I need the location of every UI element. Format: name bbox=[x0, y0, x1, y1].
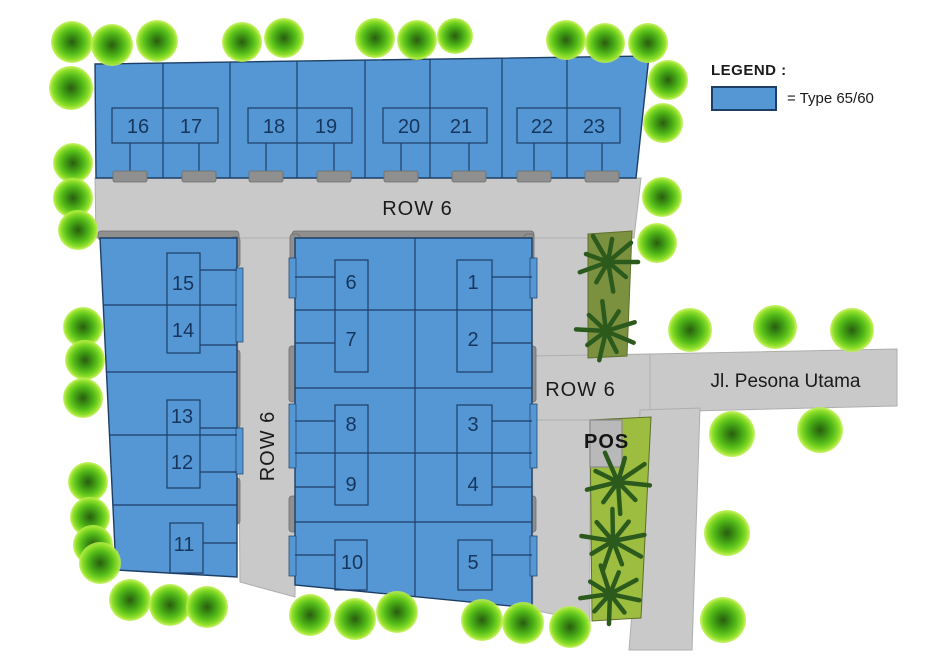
tree bbox=[668, 308, 712, 352]
driveway-apron bbox=[113, 171, 147, 182]
driveway-stub bbox=[289, 258, 296, 298]
tree bbox=[136, 20, 178, 62]
driveway-stub bbox=[289, 404, 296, 468]
legend: LEGEND : = Type 65/60 bbox=[711, 62, 926, 111]
tree bbox=[186, 586, 228, 628]
lot-number-14: 14 bbox=[161, 318, 205, 344]
tree bbox=[700, 597, 746, 643]
row6-top-road-label: ROW 6 bbox=[375, 198, 460, 220]
tree bbox=[51, 21, 93, 63]
lot-number-11: 11 bbox=[162, 532, 206, 558]
tree bbox=[334, 598, 376, 640]
tree bbox=[109, 579, 151, 621]
tree bbox=[355, 18, 395, 58]
lot-number-10: 10 bbox=[330, 550, 374, 576]
site-plan: ROW 6 ROW 6 ROW 6 Jl. Pesona Utama POS L… bbox=[0, 0, 943, 666]
tree bbox=[753, 305, 797, 349]
lot-number-7: 7 bbox=[329, 327, 373, 353]
tree bbox=[79, 542, 121, 584]
tree bbox=[222, 22, 262, 62]
lot-number-20: 20 bbox=[387, 114, 431, 140]
driveway-apron bbox=[317, 171, 351, 182]
tree bbox=[53, 143, 93, 183]
tree bbox=[68, 462, 108, 502]
lot-number-5: 5 bbox=[451, 550, 495, 576]
driveway-apron bbox=[517, 171, 551, 182]
road-row6-top bbox=[95, 178, 641, 238]
road-row6-right bbox=[532, 238, 590, 622]
driveway-apron bbox=[452, 171, 486, 182]
lot-number-3: 3 bbox=[451, 412, 495, 438]
tree bbox=[704, 510, 750, 556]
lot-number-18: 18 bbox=[252, 114, 296, 140]
legend-type-label: = Type 65/60 bbox=[787, 90, 874, 107]
lot-number-8: 8 bbox=[329, 412, 373, 438]
driveway-stub bbox=[236, 428, 243, 474]
tree bbox=[63, 378, 103, 418]
legend-heading: LEGEND : bbox=[711, 62, 926, 79]
tree bbox=[65, 340, 105, 380]
tree bbox=[289, 594, 331, 636]
driveway-stub bbox=[530, 536, 537, 576]
lot-number-16: 16 bbox=[116, 114, 160, 140]
legend-type-swatch bbox=[711, 86, 777, 111]
driveway-stub bbox=[530, 258, 537, 298]
tree bbox=[437, 18, 473, 54]
tree bbox=[830, 308, 874, 352]
lot-number-21: 21 bbox=[439, 114, 483, 140]
street-name-label: Jl. Pesona Utama bbox=[698, 371, 873, 392]
tree bbox=[264, 18, 304, 58]
tree bbox=[797, 407, 843, 453]
tree bbox=[642, 177, 682, 217]
tree bbox=[149, 584, 191, 626]
driveway-stub bbox=[236, 268, 243, 342]
driveway-apron bbox=[249, 171, 283, 182]
lot-number-12: 12 bbox=[160, 450, 204, 476]
tree bbox=[648, 60, 688, 100]
tree bbox=[502, 602, 544, 644]
lot-number-17: 17 bbox=[169, 114, 213, 140]
lot-number-2: 2 bbox=[451, 327, 495, 353]
tree bbox=[58, 210, 98, 250]
tree bbox=[637, 223, 677, 263]
tree bbox=[585, 23, 625, 63]
tree bbox=[397, 20, 437, 60]
guard-post-label: POS bbox=[584, 431, 636, 454]
lot-number-19: 19 bbox=[304, 114, 348, 140]
row6-left-road-label: ROW 6 bbox=[257, 400, 281, 492]
driveway-stub bbox=[530, 404, 537, 468]
driveway-stub bbox=[289, 536, 296, 576]
tree bbox=[709, 411, 755, 457]
driveway-apron bbox=[182, 171, 216, 182]
lot-number-6: 6 bbox=[329, 270, 373, 296]
tree bbox=[549, 606, 591, 648]
driveway-apron bbox=[384, 171, 418, 182]
tree bbox=[49, 66, 93, 110]
driveway-apron bbox=[585, 171, 619, 182]
lot-number-1: 1 bbox=[451, 270, 495, 296]
lot-number-4: 4 bbox=[451, 472, 495, 498]
tree bbox=[546, 20, 586, 60]
tree bbox=[376, 591, 418, 633]
tree bbox=[628, 23, 668, 63]
tree bbox=[91, 24, 133, 66]
lot-number-15: 15 bbox=[161, 271, 205, 297]
lot-number-23: 23 bbox=[572, 114, 616, 140]
lot-number-22: 22 bbox=[520, 114, 564, 140]
tree bbox=[461, 599, 503, 641]
tree bbox=[643, 103, 683, 143]
lot-number-13: 13 bbox=[160, 404, 204, 430]
row6-right-road-label: ROW 6 bbox=[538, 379, 623, 401]
lot-number-9: 9 bbox=[329, 472, 373, 498]
